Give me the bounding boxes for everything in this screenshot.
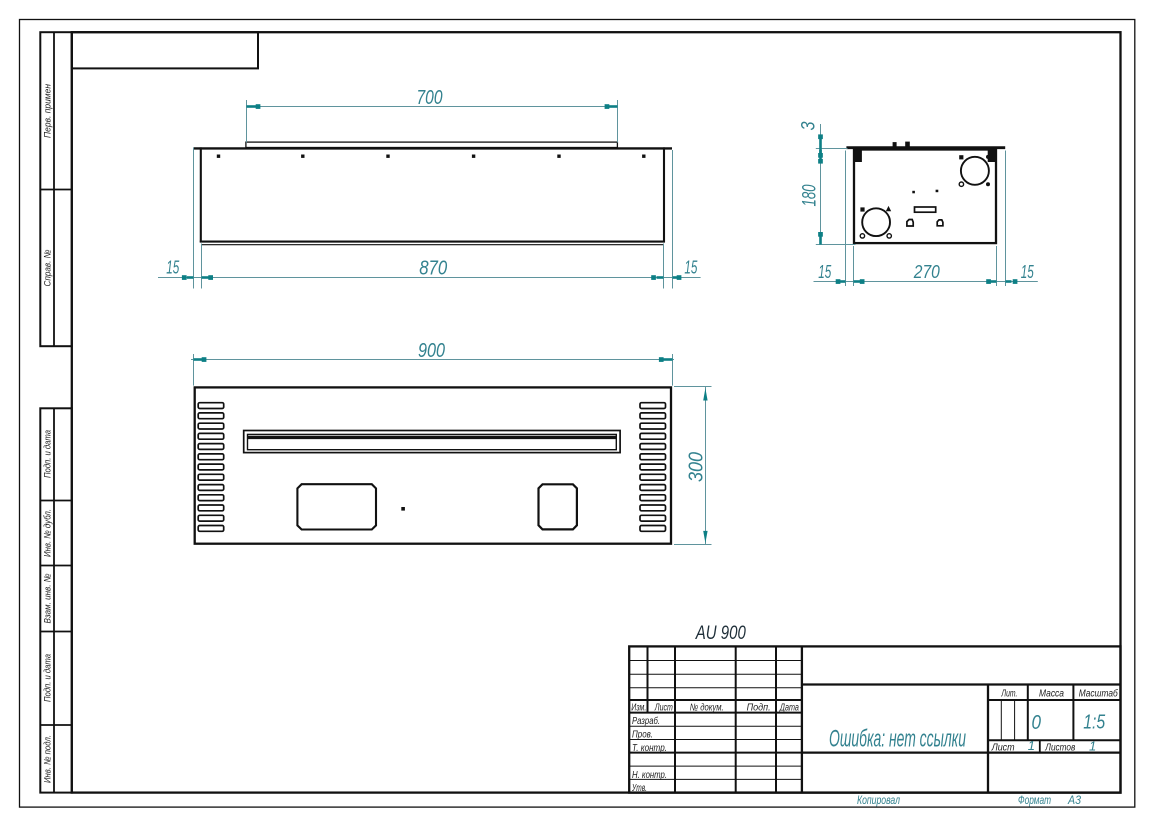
- svg-text:Формат: Формат: [1018, 793, 1051, 807]
- svg-text:AU 900: AU 900: [695, 622, 746, 644]
- svg-text:Листов: Листов: [1044, 742, 1075, 753]
- svg-text:15: 15: [684, 257, 697, 278]
- svg-text:Копировал: Копировал: [857, 793, 900, 807]
- svg-text:№ докум.: № докум.: [690, 703, 724, 714]
- svg-text:Взам. инв. №: Взам. инв. №: [43, 574, 54, 624]
- svg-text:Подп.: Подп.: [747, 703, 771, 714]
- svg-text:870: 870: [419, 258, 447, 280]
- svg-text:Инв. № дубл.: Инв. № дубл.: [43, 509, 54, 557]
- svg-text:1: 1: [1089, 738, 1096, 753]
- svg-text:900: 900: [418, 340, 445, 362]
- svg-text:Лит.: Лит.: [1001, 689, 1018, 700]
- svg-text:Утв.: Утв.: [631, 783, 647, 794]
- svg-text:Н. контр.: Н. контр.: [632, 770, 667, 781]
- svg-text:Ошибка: нет ссылки: Ошибка: нет ссылки: [829, 725, 966, 752]
- svg-text:3: 3: [799, 121, 820, 130]
- svg-text:Масштаб: Масштаб: [1079, 688, 1118, 700]
- svg-text:Лист: Лист: [991, 742, 1015, 753]
- svg-text:Пров.: Пров.: [632, 730, 653, 741]
- svg-text:Инв. № подл.: Инв. № подл.: [43, 735, 54, 783]
- svg-text:15: 15: [1021, 261, 1034, 282]
- svg-text:300: 300: [686, 452, 708, 482]
- svg-text:Подп. и дата: Подп. и дата: [43, 430, 54, 478]
- svg-text:А3: А3: [1067, 793, 1081, 807]
- svg-text:Разраб.: Разраб.: [632, 715, 660, 727]
- svg-text:1:5: 1:5: [1083, 710, 1105, 733]
- svg-text:1: 1: [1028, 738, 1035, 753]
- svg-text:180: 180: [800, 184, 821, 206]
- svg-text:Перв. примен: Перв. примен: [43, 83, 54, 138]
- svg-text:Справ. №: Справ. №: [43, 250, 54, 287]
- svg-text:Масса: Масса: [1039, 689, 1064, 700]
- svg-text:Т. контр.: Т. контр.: [632, 743, 667, 754]
- svg-text:15: 15: [166, 257, 179, 278]
- svg-text:Лист: Лист: [654, 703, 673, 714]
- svg-text:Изм.: Изм.: [631, 703, 646, 714]
- svg-text:Дата: Дата: [779, 703, 799, 714]
- svg-text:Подп. и дата: Подп. и дата: [43, 654, 54, 702]
- svg-text:700: 700: [417, 87, 443, 109]
- svg-text:270: 270: [913, 261, 940, 282]
- svg-text:15: 15: [818, 261, 831, 282]
- svg-text:0: 0: [1032, 711, 1042, 734]
